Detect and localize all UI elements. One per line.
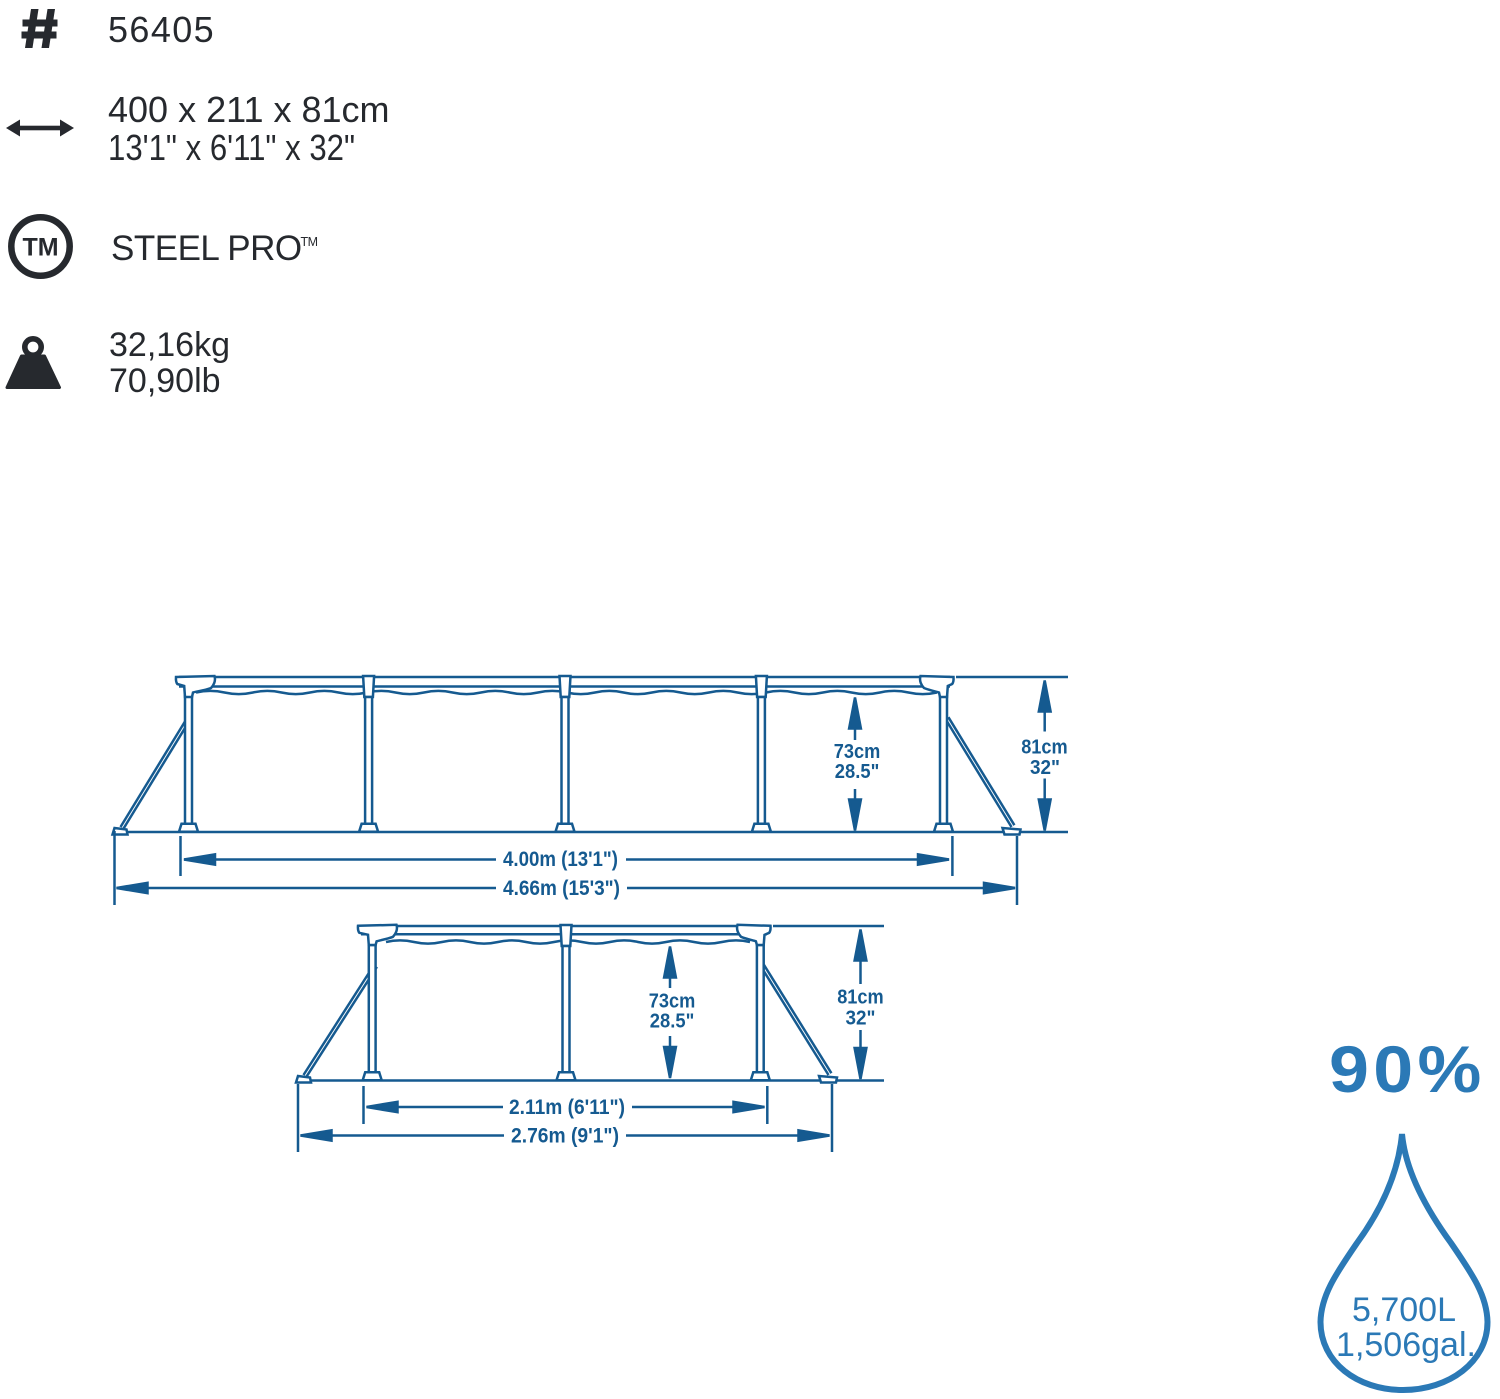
svg-text:90%: 90% bbox=[1329, 1033, 1486, 1107]
svg-text:32": 32" bbox=[1030, 756, 1060, 779]
svg-text:32,16kg: 32,16kg bbox=[109, 326, 230, 364]
svg-text:4.00m (13'1"): 4.00m (13'1") bbox=[503, 848, 618, 871]
svg-text:28.5": 28.5" bbox=[650, 1010, 695, 1033]
svg-text:56405: 56405 bbox=[108, 9, 215, 50]
svg-text:TM: TM bbox=[22, 234, 58, 262]
svg-text:2.11m (6'11"): 2.11m (6'11") bbox=[509, 1096, 625, 1119]
svg-text:TM: TM bbox=[301, 235, 318, 249]
svg-text:5,700L: 5,700L bbox=[1352, 1291, 1456, 1329]
svg-text:1,506gal.: 1,506gal. bbox=[1336, 1326, 1476, 1364]
svg-text:13'1" x 6'11" x 32": 13'1" x 6'11" x 32" bbox=[108, 127, 355, 168]
svg-text:4.66m (15'3"): 4.66m (15'3") bbox=[503, 877, 620, 900]
svg-text:70,90lb: 70,90lb bbox=[109, 362, 221, 400]
svg-text:32": 32" bbox=[846, 1007, 876, 1030]
svg-text:28.5": 28.5" bbox=[835, 760, 880, 783]
svg-text:400 x 211 x 81cm: 400 x 211 x 81cm bbox=[108, 89, 390, 130]
svg-text:81cm: 81cm bbox=[837, 986, 884, 1009]
svg-text:STEEL PRO: STEEL PRO bbox=[111, 229, 302, 268]
svg-text:2.76m (9'1"): 2.76m (9'1") bbox=[511, 1125, 619, 1148]
